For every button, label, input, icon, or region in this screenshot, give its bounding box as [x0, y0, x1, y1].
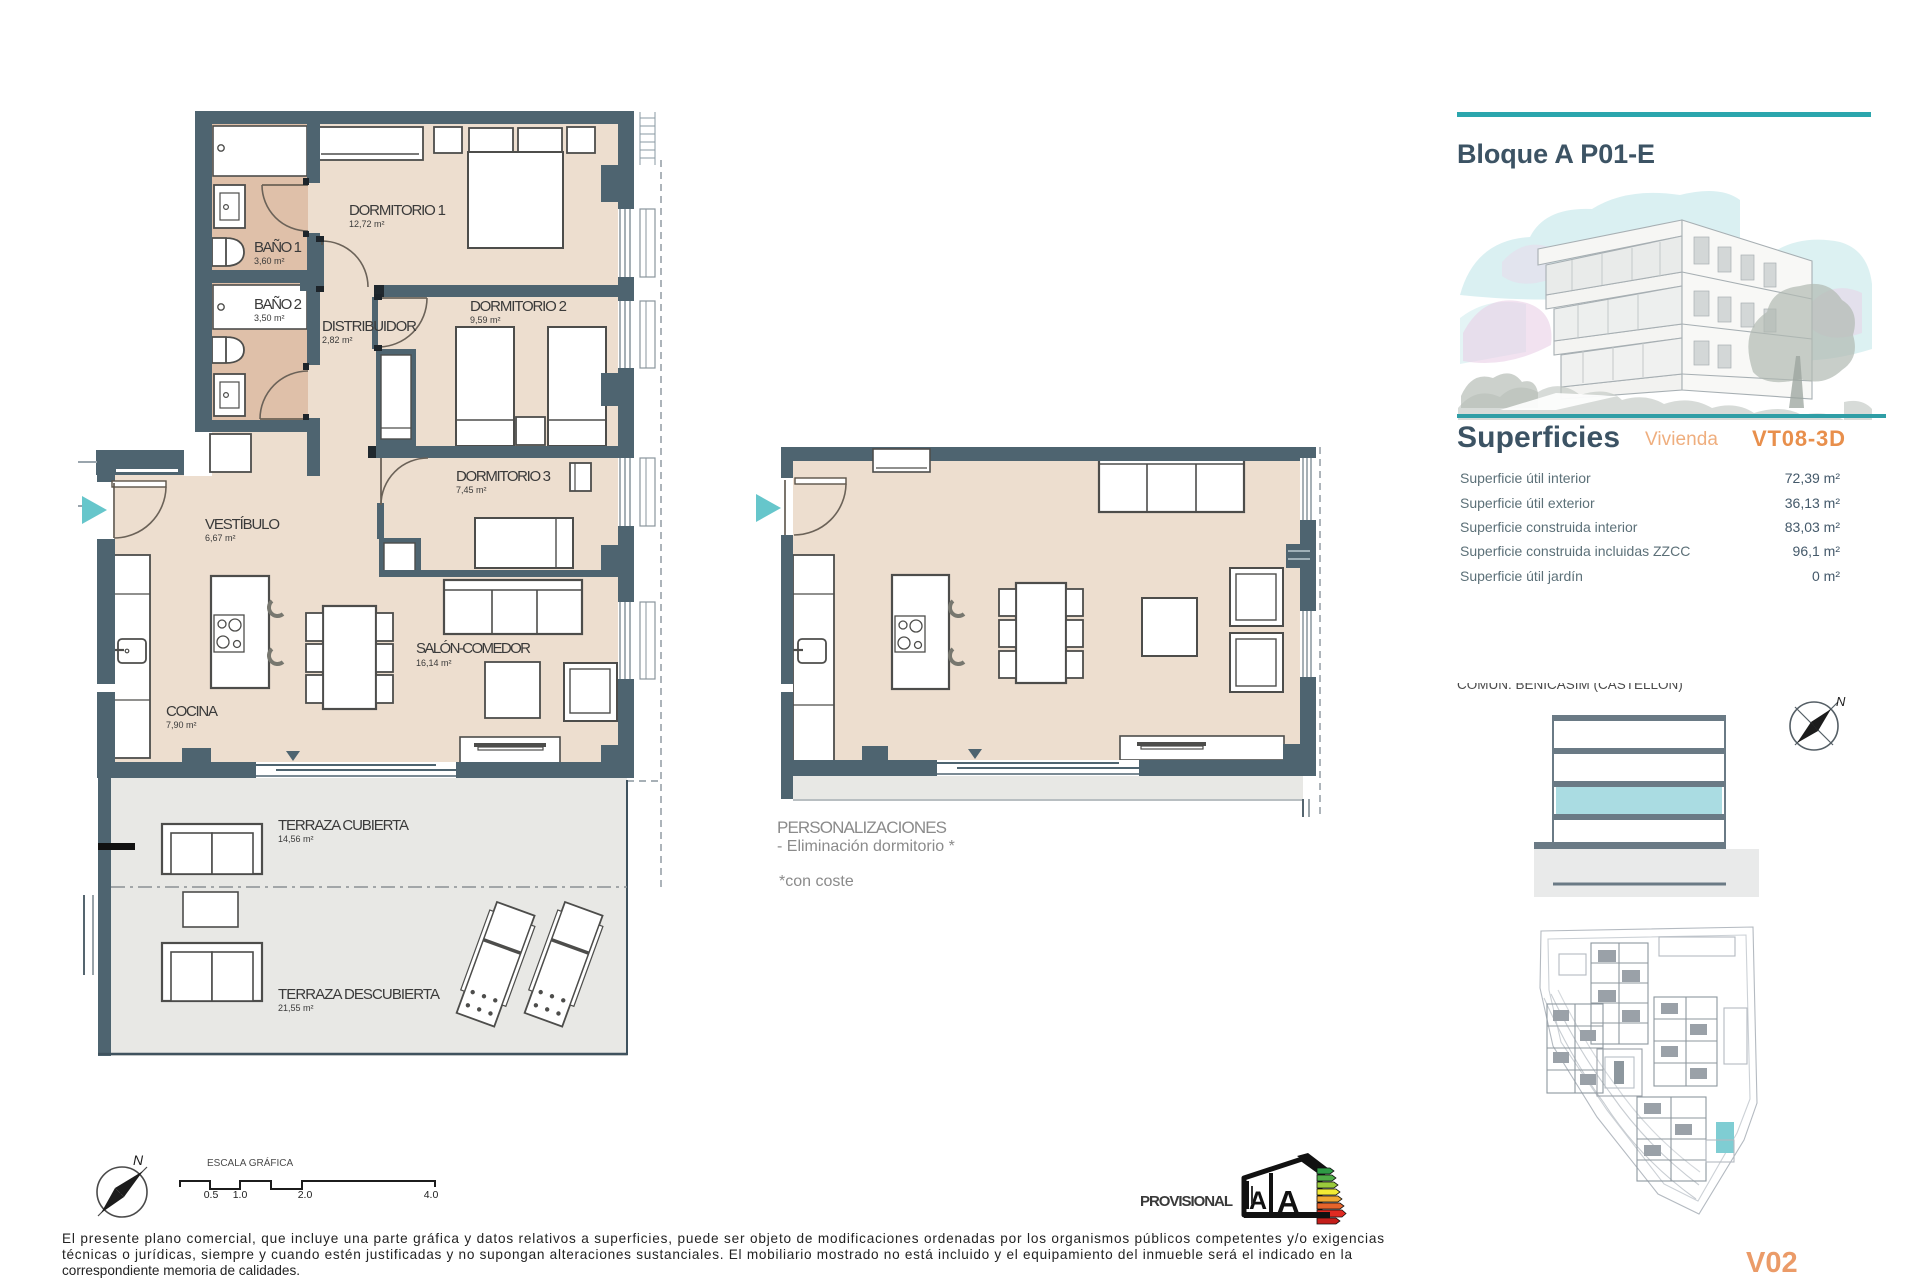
svg-text:Vivienda: Vivienda — [1645, 429, 1718, 450]
svg-text:El presente plano comercial, q: El presente plano comercial, que incluye… — [62, 1231, 1384, 1246]
svg-text:técnicas o jurídicas, siempre: técnicas o jurídicas, siempre y cuando e… — [62, 1247, 1352, 1262]
svg-text:V02: V02 — [1746, 1247, 1798, 1279]
svg-text:VT08-3D: VT08-3D — [1752, 426, 1845, 451]
svg-text:correspondiente memoria de cal: correspondiente memoria de calidades. — [62, 1263, 300, 1278]
svg-text:83,03 m²: 83,03 m² — [1785, 519, 1841, 535]
svg-text:14,56 m²: 14,56 m² — [278, 834, 314, 844]
svg-text:1.0: 1.0 — [233, 1189, 248, 1201]
svg-text:PERSONALIZACIONES: PERSONALIZACIONES — [777, 818, 947, 837]
svg-text:12,72 m²: 12,72 m² — [349, 219, 385, 229]
svg-text:2,82 m²: 2,82 m² — [322, 335, 353, 345]
svg-text:Superficie útil interior: Superficie útil interior — [1460, 470, 1591, 486]
svg-text:Superficies: Superficies — [1457, 421, 1620, 454]
svg-text:16,14 m²: 16,14 m² — [416, 658, 452, 668]
svg-text:7,90 m²: 7,90 m² — [166, 720, 197, 730]
svg-text:0 m²: 0 m² — [1812, 568, 1840, 584]
svg-text:9,59 m²: 9,59 m² — [470, 315, 501, 325]
svg-text:0.5: 0.5 — [204, 1189, 219, 1201]
svg-text:7,45 m²: 7,45 m² — [456, 485, 487, 495]
svg-text:BAÑO 1: BAÑO 1 — [254, 239, 302, 256]
svg-text:3,50 m²: 3,50 m² — [254, 313, 285, 323]
svg-text:4.0: 4.0 — [424, 1189, 439, 1201]
svg-text:72,39 m²: 72,39 m² — [1785, 470, 1841, 486]
svg-text:VESTÍBULO: VESTÍBULO — [205, 516, 280, 533]
svg-text:3,60 m²: 3,60 m² — [254, 256, 285, 266]
svg-text:- Eliminación dormitorio *: - Eliminación dormitorio * — [777, 838, 955, 855]
svg-text:Superficie útil jardín: Superficie útil jardín — [1460, 568, 1583, 584]
svg-text:Superficie construida interior: Superficie construida interior — [1460, 519, 1638, 535]
svg-text:N: N — [1836, 694, 1846, 709]
svg-text:96,1 m²: 96,1 m² — [1793, 543, 1841, 559]
svg-text:N: N — [133, 1152, 144, 1168]
svg-text:Bloque A P01-E: Bloque A P01-E — [1457, 139, 1655, 169]
svg-text:ESCALA GRÁFICA: ESCALA GRÁFICA — [207, 1156, 293, 1169]
svg-text:2.0: 2.0 — [298, 1189, 313, 1201]
svg-text:21,55 m²: 21,55 m² — [278, 1003, 314, 1013]
svg-text:PROVISIONAL: PROVISIONAL — [1140, 1193, 1233, 1210]
svg-text:36,13 m²: 36,13 m² — [1785, 495, 1841, 511]
svg-text:DORMITORIO 1: DORMITORIO 1 — [349, 202, 446, 219]
svg-text:TERRAZA CUBIERTA: TERRAZA CUBIERTA — [278, 817, 409, 834]
svg-text:COCINA: COCINA — [166, 703, 218, 720]
svg-text:*con coste: *con coste — [779, 873, 854, 890]
svg-text:DORMITORIO 3: DORMITORIO 3 — [456, 468, 551, 485]
svg-text:Superficie construida incluida: Superficie construida incluidas ZZCC — [1460, 543, 1690, 559]
svg-text:Superficie útil exterior: Superficie útil exterior — [1460, 495, 1595, 511]
svg-text:SALÓN-COMEDOR: SALÓN-COMEDOR — [416, 640, 531, 657]
svg-text:6,67 m²: 6,67 m² — [205, 533, 236, 543]
svg-text:DISTRIBUIDOR: DISTRIBUIDOR — [322, 318, 417, 335]
svg-text:TERRAZA DESCUBIERTA: TERRAZA DESCUBIERTA — [278, 986, 440, 1003]
svg-text:BAÑO 2: BAÑO 2 — [254, 296, 302, 313]
svg-text:DORMITORIO 2: DORMITORIO 2 — [470, 298, 567, 315]
